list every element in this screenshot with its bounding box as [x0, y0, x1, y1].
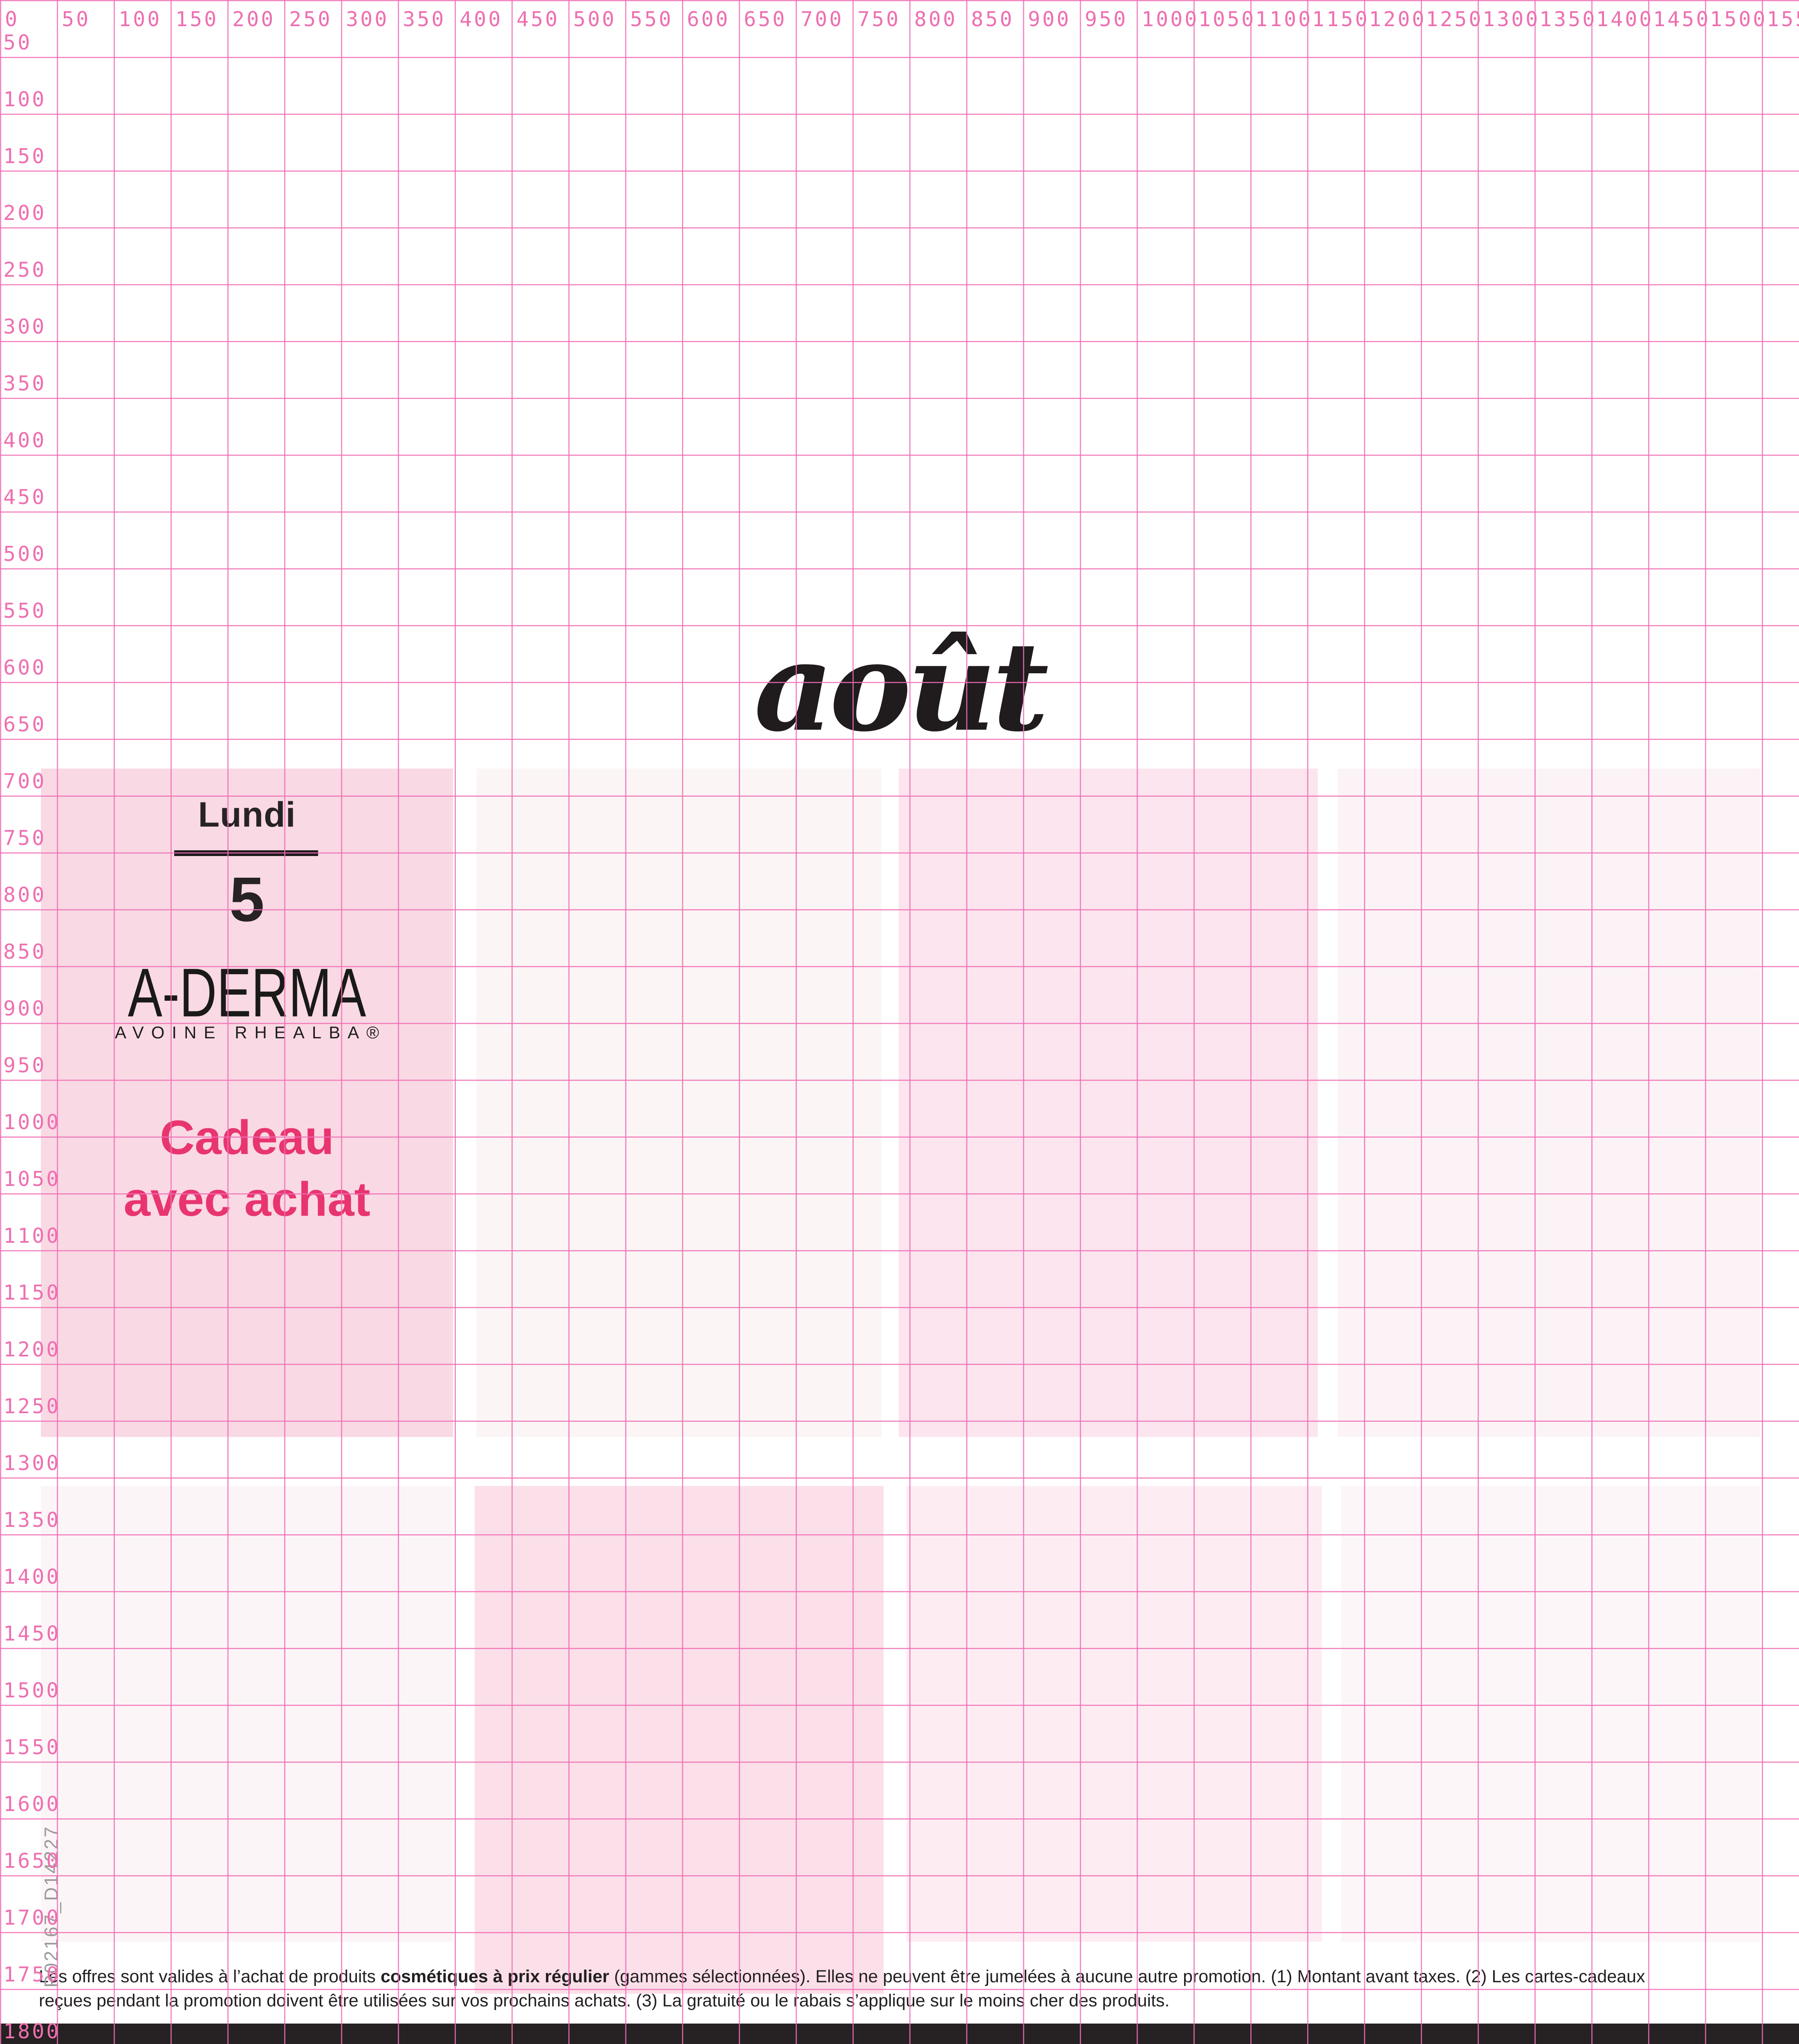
ruler-label-left: 550: [3, 601, 46, 621]
grid-vline: [0, 0, 1, 2044]
ruler-label-left: 450: [3, 487, 46, 507]
placeholder-block-row2-col1: [41, 1486, 453, 1942]
grid-hline: [0, 0, 1799, 1]
ruler-label-top: 200: [232, 9, 275, 29]
ruler-label-top: 1550: [1767, 9, 1799, 29]
brand-tagline: AVOINE RHEALBA®: [41, 1023, 453, 1042]
placeholder-block-row1-col4: [1338, 769, 1761, 1437]
ruler-label-top: 600: [687, 9, 730, 29]
ruler-label-top: 800: [914, 9, 957, 29]
grid-hline: [0, 455, 1799, 456]
ruler-label-left: 150: [3, 146, 46, 166]
ruler-label-left: 300: [3, 316, 46, 337]
ruler-label-top: 1500: [1710, 9, 1767, 29]
grid-hline: [0, 170, 1799, 172]
ruler-label-top: 900: [1028, 9, 1071, 29]
ruler-label-top: 750: [857, 9, 900, 29]
ruler-label-top: 400: [460, 9, 502, 29]
grid-hline: [0, 1477, 1799, 1479]
day-divider-rule: [174, 850, 318, 856]
ruler-label-left: 500: [3, 544, 46, 564]
ruler-label-top: 0: [5, 9, 19, 29]
grid-hline: [0, 114, 1799, 115]
offer-line1: Cadeau: [41, 1107, 453, 1169]
ruler-label-top: 1000: [1142, 9, 1199, 29]
ruler-label-top: 1250: [1426, 9, 1483, 29]
offer-text: Cadeau avec achat: [41, 1107, 453, 1230]
grid-vline: [455, 0, 456, 2044]
ruler-label-top: 850: [971, 9, 1014, 29]
grid-hline: [0, 511, 1799, 513]
grid-hline: [0, 57, 1799, 58]
footer-bar: [0, 2024, 1799, 2044]
legal-line2: reçues pendant la promotion doivent être…: [39, 1989, 1789, 2013]
placeholder-block-row2-col2: [475, 1486, 884, 1994]
grid-hline: [0, 568, 1799, 569]
ruler-label-top: 150: [175, 9, 218, 29]
ruler-label-left: 50: [3, 32, 32, 53]
ruler-label-top: 50: [62, 9, 90, 29]
ruler-label-left: 900: [3, 998, 46, 1019]
ruler-label-left: 400: [3, 430, 46, 450]
ruler-label-top: 1450: [1653, 9, 1710, 29]
placeholder-block-row1-col2: [476, 769, 882, 1437]
ruler-label-top: 1050: [1198, 9, 1256, 29]
legal-line1: Les offres sont valides à l’achat de pro…: [39, 1965, 1789, 1989]
legal-line1-post: (gammes sélectionnées). Elles ne peuvent…: [609, 1967, 1645, 1986]
ruler-label-left: 350: [3, 373, 46, 394]
ruler-label-top: 1150: [1312, 9, 1369, 29]
ruler-label-left: 100: [3, 89, 46, 110]
ruler-label-top: 250: [289, 9, 332, 29]
ruler-label-left: 200: [3, 203, 46, 223]
month-title: août: [0, 625, 1799, 748]
ruler-label-top: 1100: [1255, 9, 1312, 29]
ruler-label-top: 1350: [1539, 9, 1597, 29]
placeholder-block-row2-col3: [906, 1486, 1322, 1942]
ruler-label-top: 1400: [1596, 9, 1653, 29]
ruler-label-left: 250: [3, 260, 46, 280]
ruler-label-left: 850: [3, 941, 46, 962]
ruler-label-left: 750: [3, 828, 46, 848]
ruler-label-top: 300: [346, 9, 389, 29]
ruler-label-top: 500: [573, 9, 616, 29]
grid-vline: [1762, 0, 1763, 2044]
ruler-label-top: 700: [801, 9, 843, 29]
ruler-label-top: 950: [1085, 9, 1128, 29]
placeholder-block-row1-col3: [899, 769, 1318, 1437]
flyer-proof-page: août Lundi 5 A-DERMA AVOINE RHEALBA® Cad…: [0, 0, 1799, 2044]
legal-line1-bold: cosmétiques à prix régulier: [381, 1967, 609, 1986]
grid-hline: [0, 341, 1799, 342]
legal-line1-pre: Les offres sont valides à l’achat de pro…: [39, 1967, 381, 1986]
day-label: Lundi: [41, 795, 453, 835]
brand-logo-aderma: A-DERMA: [86, 959, 408, 1027]
legal-text: Les offres sont valides à l’achat de pro…: [39, 1965, 1789, 2013]
placeholder-block-row2-col4: [1341, 1486, 1761, 1942]
ruler-label-top: 550: [630, 9, 673, 29]
ruler-label-left: 950: [3, 1055, 46, 1076]
ruler-label-top: 650: [744, 9, 787, 29]
ruler-label-top: 1300: [1483, 9, 1540, 29]
ruler-label-top: 100: [119, 9, 162, 29]
ruler-label-top: 350: [403, 9, 446, 29]
day-number: 5: [41, 863, 453, 936]
production-code: P02167_D14227: [40, 1825, 62, 1988]
ruler-label-top: 1200: [1369, 9, 1426, 29]
offer-line2: avec achat: [41, 1169, 453, 1230]
ruler-label-top: 450: [516, 9, 559, 29]
ruler-label-left: 1300: [3, 1453, 61, 1473]
grid-hline: [0, 398, 1799, 399]
grid-hline: [0, 284, 1799, 285]
ruler-label-left: 800: [3, 885, 46, 905]
ruler-label-left: 700: [3, 771, 46, 791]
grid-hline: [0, 227, 1799, 229]
